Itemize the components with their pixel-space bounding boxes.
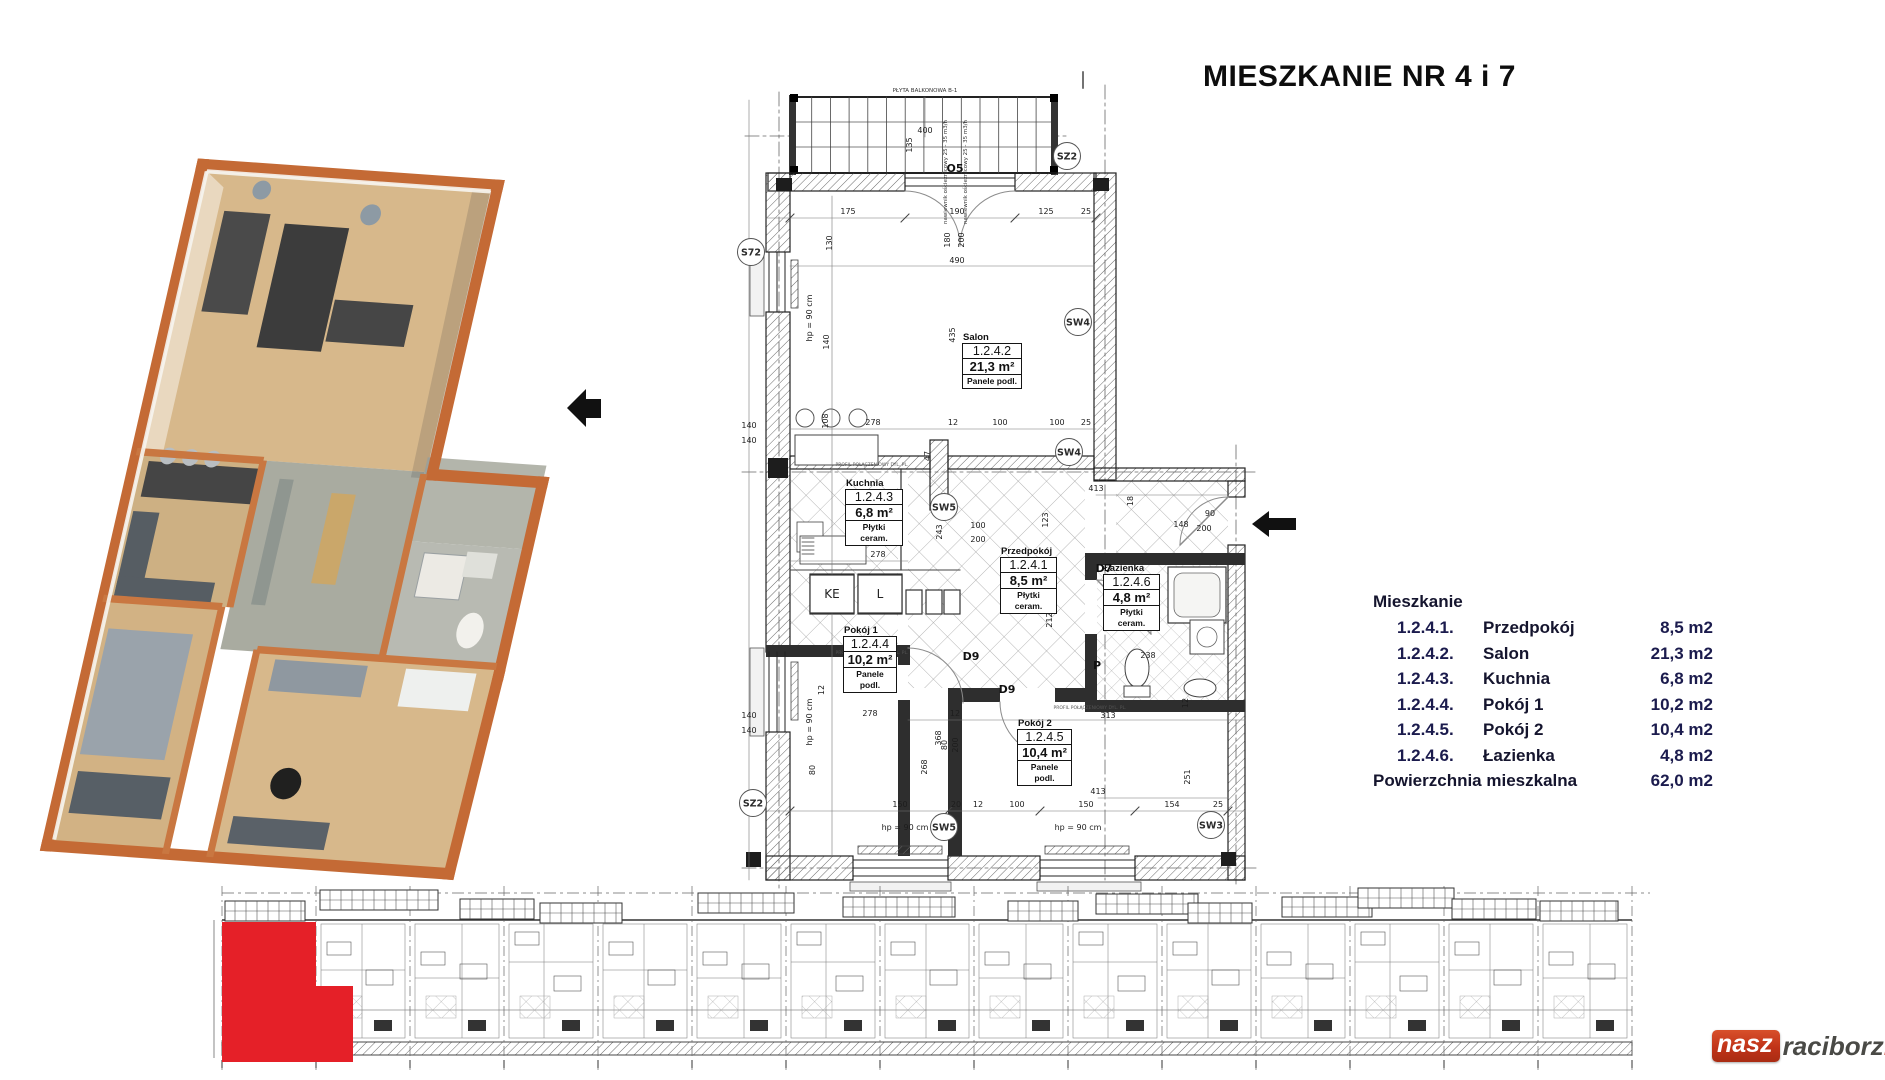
strip-hatch-patch bbox=[1178, 996, 1208, 1018]
dim-label: 435 bbox=[948, 327, 957, 342]
room-label-kuchnia: Kuchnia 1.2.4.3 6,8 m² Płytki ceram. bbox=[845, 478, 903, 546]
room-label-pokoj1: Pokój 1 1.2.4.4 10,2 m² Panele podl. bbox=[843, 625, 897, 693]
floor-plan-2d: 40013517519012525180200130490140435hp = … bbox=[738, 72, 1261, 891]
strip-box bbox=[1024, 964, 1051, 979]
dim-label: hp = 90 cm bbox=[805, 294, 814, 341]
strip-box bbox=[1455, 942, 1479, 955]
l-unit-label: L bbox=[877, 587, 884, 601]
d9-marker-label: D9 bbox=[963, 650, 980, 663]
sz2-marker-label: SZ2 bbox=[743, 799, 763, 810]
strip-unit-outline bbox=[697, 924, 781, 1038]
strip-unit-outline bbox=[791, 924, 875, 1038]
watermark-raciborz-pl: raciborz.pl bbox=[1783, 1031, 1885, 1062]
legend-row: 1.2.4.6. Łazienka 4,8 m2 bbox=[1373, 746, 1713, 772]
dim-label: 100 bbox=[992, 418, 1007, 427]
strip-box bbox=[797, 932, 821, 945]
dim-label: 278 bbox=[870, 550, 885, 559]
strip-hatch-patch bbox=[802, 996, 832, 1018]
sw4-marker-label: SW4 bbox=[1057, 448, 1081, 459]
strip-hatch-patch bbox=[520, 996, 550, 1018]
dim-label: hp = 90 cm bbox=[1055, 823, 1102, 832]
dim-label: 100 bbox=[1009, 800, 1024, 809]
strip-hatch-patch bbox=[1084, 996, 1114, 1018]
strip-unit-outline bbox=[1543, 924, 1627, 1038]
dim-label: 268 bbox=[920, 759, 929, 774]
legend-row: 1.2.4.1. Przedpokój 8,5 m2 bbox=[1373, 618, 1713, 644]
vent-note-2: nawiewnik ościeżnicowy 25 - 35 m3/h bbox=[962, 119, 969, 224]
strip-box bbox=[930, 970, 957, 985]
strip-box bbox=[1267, 952, 1291, 965]
strip-unit-outline bbox=[1261, 924, 1345, 1038]
strip-box bbox=[891, 942, 915, 955]
dim-label: 313 bbox=[1100, 711, 1115, 720]
d9-marker-label: D9 bbox=[999, 683, 1016, 696]
pointer-arrow-left bbox=[567, 389, 601, 427]
legend-footer: Powierzchnia mieszkalna 62,0 m2 bbox=[1373, 771, 1713, 797]
strip-unit-outline bbox=[509, 924, 593, 1038]
strip-dark-box bbox=[844, 1020, 862, 1031]
strip-dark-box bbox=[1220, 1020, 1238, 1031]
dim-label: 200 bbox=[951, 737, 960, 752]
vent-note-1: nawiewnik ościeżnicowy 25 - 35 m3/h bbox=[942, 119, 949, 224]
dim-label: 238 bbox=[1140, 651, 1155, 660]
strip-unit-outline bbox=[1355, 924, 1439, 1038]
dim-label: 100 bbox=[1049, 418, 1064, 427]
strip-box bbox=[609, 942, 633, 955]
strip-bottom-wall bbox=[222, 1042, 1632, 1055]
room-label-salon: Salon 1.2.4.2 21,3 m² Panele podl. bbox=[962, 332, 1022, 389]
strip-unit-outline bbox=[603, 924, 687, 1038]
dim-label: 175 bbox=[840, 207, 855, 216]
dim-label: 123 bbox=[1041, 512, 1050, 527]
dim-label: 25 bbox=[1213, 800, 1223, 809]
strip-box bbox=[366, 970, 393, 985]
dim-label: 140 bbox=[822, 334, 831, 349]
strip-dark-box bbox=[1408, 1020, 1426, 1031]
strip-box bbox=[515, 932, 539, 945]
legend-row: 1.2.4.4. Pokój 1 10,2 m2 bbox=[1373, 695, 1713, 721]
s72-marker-label: S72 bbox=[741, 248, 761, 259]
strip-box bbox=[1494, 970, 1521, 985]
dim-label: 413 bbox=[1090, 787, 1105, 796]
strip-box bbox=[460, 964, 487, 979]
strip-unit-outline bbox=[415, 924, 499, 1038]
building-strip bbox=[214, 886, 1650, 1070]
page: 40013517519012525180200130490140435hp = … bbox=[0, 0, 1885, 1080]
strip-box bbox=[554, 976, 581, 991]
strip-dark-box bbox=[1126, 1020, 1144, 1031]
sw5-marker-label: SW5 bbox=[932, 823, 956, 834]
page-title: MIESZKANIE NR 4 i 7 bbox=[1203, 60, 1516, 94]
strip-box bbox=[327, 942, 351, 955]
room-label-przedpokoj: Przedpokój 1.2.4.1 8,5 m² Płytki ceram. bbox=[1000, 546, 1057, 614]
strip-dark-box bbox=[1502, 1020, 1520, 1031]
room-label-pokoj2: Pokój 2 1.2.4.5 10,4 m² Panele podl. bbox=[1017, 718, 1072, 786]
strip-box bbox=[1549, 952, 1573, 965]
strip-box bbox=[1173, 942, 1197, 955]
dim-label: 150 bbox=[1078, 800, 1093, 809]
dim-label: 18 bbox=[1126, 496, 1135, 506]
strip-box bbox=[1118, 976, 1145, 991]
strip-dark-box bbox=[750, 1020, 768, 1031]
render-3d-view bbox=[47, 165, 609, 875]
sz2-marker-label: SZ2 bbox=[1057, 152, 1077, 163]
strip-hatch-patch bbox=[1272, 996, 1302, 1018]
strip-box bbox=[836, 976, 863, 991]
strip-unit-outline bbox=[1449, 924, 1533, 1038]
highlighted-unit bbox=[222, 922, 353, 1062]
strip-hatch-patch bbox=[708, 996, 738, 1018]
sw4-marker-label: SW4 bbox=[1066, 318, 1090, 329]
dim-label: 80 bbox=[808, 765, 817, 775]
dim-label: 490 bbox=[949, 256, 964, 265]
strip-box bbox=[742, 964, 769, 979]
dim-label: 12 bbox=[1181, 698, 1190, 708]
strip-box bbox=[703, 952, 727, 965]
strip-dark-box bbox=[1596, 1020, 1614, 1031]
strip-hatch-patch bbox=[614, 996, 644, 1018]
legend-row: 1.2.4.2. Salon 21,3 m2 bbox=[1373, 644, 1713, 670]
strip-dark-box bbox=[656, 1020, 674, 1031]
watermark: nasz raciborz.pl bbox=[1712, 1030, 1885, 1062]
strip-unit-outline bbox=[979, 924, 1063, 1038]
dim-label: 12 bbox=[948, 418, 958, 427]
strip-unit-outline bbox=[885, 924, 969, 1038]
sw3-marker-label: SW3 bbox=[1199, 821, 1223, 832]
dim-label: 140 bbox=[741, 711, 756, 720]
strip-dark-box bbox=[1032, 1020, 1050, 1031]
dim-label: hp = 90 cm bbox=[882, 823, 929, 832]
strip-hatch-patch bbox=[1366, 996, 1396, 1018]
legend-header: Mieszkanie bbox=[1373, 592, 1713, 618]
dim-label: 12 bbox=[817, 685, 826, 695]
dim-label: 25 bbox=[1081, 207, 1091, 216]
pointer-arrow-entrance bbox=[1252, 511, 1296, 537]
dim-label: 47 bbox=[923, 451, 932, 461]
strip-unit-outline bbox=[1167, 924, 1251, 1038]
strip-dark-box bbox=[1314, 1020, 1332, 1031]
dim-label: 130 bbox=[825, 235, 834, 250]
dim-label: 200 bbox=[957, 232, 966, 247]
dim-label: 243 bbox=[935, 524, 944, 539]
dim-label: hp = 90 cm bbox=[805, 698, 814, 745]
dim-label: 90 bbox=[1205, 509, 1215, 518]
dim-label: 140 bbox=[741, 726, 756, 735]
strip-hatch-patch bbox=[1554, 996, 1584, 1018]
dim-label: 413 bbox=[1088, 484, 1103, 493]
dim-label: 212 bbox=[1045, 612, 1054, 627]
ke-unit-label: KE bbox=[824, 587, 839, 601]
balcony-plate-note: PŁYTA BALKONOWA B-1 bbox=[893, 88, 958, 94]
dim-label: 125 bbox=[1038, 207, 1053, 216]
dim-label: 135 bbox=[905, 137, 914, 152]
dim-label: 154 bbox=[1164, 800, 1179, 809]
strip-box bbox=[1400, 976, 1427, 991]
watermark-nasz: nasz bbox=[1712, 1030, 1780, 1062]
dim-label: 278 bbox=[865, 418, 880, 427]
strip-box bbox=[648, 970, 675, 985]
p-marker-label: P bbox=[1093, 659, 1101, 672]
strip-box bbox=[421, 952, 445, 965]
strip-hatch-patch bbox=[896, 996, 926, 1018]
strip-hatch-patch bbox=[990, 996, 1020, 1018]
dim-label: 25 bbox=[1081, 418, 1091, 427]
legend-row: 1.2.4.3. Kuchnia 6,8 m2 bbox=[1373, 669, 1713, 695]
strip-dark-box bbox=[562, 1020, 580, 1031]
strip-box bbox=[1588, 964, 1615, 979]
profile-note-3: PROFIL POŁĄCZENIOWY DYL. PL. bbox=[1054, 705, 1127, 711]
dim-label: 148 bbox=[1173, 520, 1188, 529]
dim-label: 140 bbox=[741, 421, 756, 430]
dim-label: 251 bbox=[1183, 769, 1192, 784]
dim-label: 278 bbox=[862, 709, 877, 718]
strip-box bbox=[1212, 970, 1239, 985]
sw5-marker-label: SW5 bbox=[932, 503, 956, 514]
strip-box bbox=[985, 952, 1009, 965]
dim-label: 12 bbox=[950, 709, 960, 718]
o5-marker-label: O5 bbox=[946, 162, 963, 175]
room-label-lazienka: Łazienka 1.2.4.6 4,8 m² Płytki ceram. bbox=[1103, 563, 1160, 631]
profile-note-1: PROFIL POŁĄCZENIOWY DYL. PL. bbox=[836, 462, 909, 468]
dim-label: 200 bbox=[970, 535, 985, 544]
drawing-canvas: 40013517519012525180200130490140435hp = … bbox=[0, 0, 1885, 1080]
dim-label: 108 bbox=[821, 413, 830, 428]
dim-label: 100 bbox=[970, 521, 985, 530]
area-legend: Mieszkanie 1.2.4.1. Przedpokój 8,5 m2 1.… bbox=[1373, 592, 1713, 797]
dim-label: 180 bbox=[943, 232, 952, 247]
strip-hatch-patch bbox=[1460, 996, 1490, 1018]
strip-unit-outline bbox=[1073, 924, 1157, 1038]
dim-label: 12 bbox=[973, 800, 983, 809]
strip-box bbox=[1079, 932, 1103, 945]
dim-label: 150 bbox=[892, 800, 907, 809]
strip-dark-box bbox=[938, 1020, 956, 1031]
strip-box bbox=[1361, 932, 1385, 945]
dim-label: 140 bbox=[741, 436, 756, 445]
strip-dark-box bbox=[468, 1020, 486, 1031]
dim-label: 200 bbox=[1196, 524, 1211, 533]
strip-box bbox=[1306, 964, 1333, 979]
legend-row: 1.2.4.5. Pokój 2 10,4 m2 bbox=[1373, 720, 1713, 746]
strip-dark-box bbox=[374, 1020, 392, 1031]
dim-label: 368 bbox=[934, 730, 943, 745]
dim-label: 20 bbox=[951, 800, 961, 809]
strip-hatch-patch bbox=[426, 996, 456, 1018]
dim-label: 400 bbox=[917, 126, 932, 135]
